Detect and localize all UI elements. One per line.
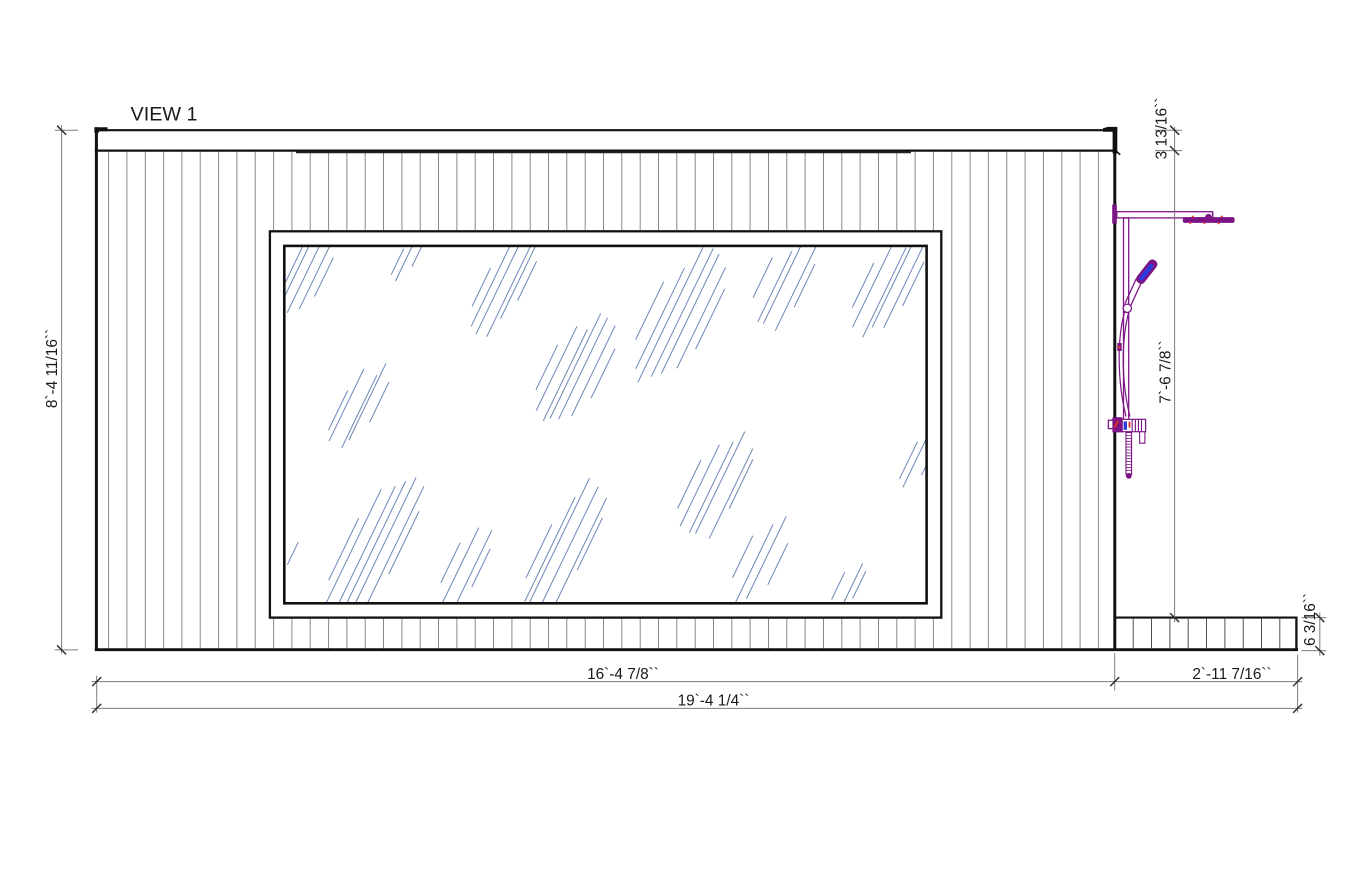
svg-text:7`-6 7/8``: 7`-6 7/8``	[1158, 340, 1175, 403]
svg-text:19`-4 1/4``: 19`-4 1/4``	[678, 693, 750, 710]
svg-text:16`-4 7/8``: 16`-4 7/8``	[587, 666, 659, 683]
svg-text:3 13/16``: 3 13/16``	[1154, 98, 1171, 160]
svg-text:8`-4 11/16``: 8`-4 11/16``	[44, 329, 61, 408]
svg-text:6 3/16``: 6 3/16``	[1302, 593, 1319, 646]
svg-text:VIEW 1: VIEW 1	[131, 104, 198, 126]
svg-text:2`-11 7/16``: 2`-11 7/16``	[1192, 666, 1271, 683]
